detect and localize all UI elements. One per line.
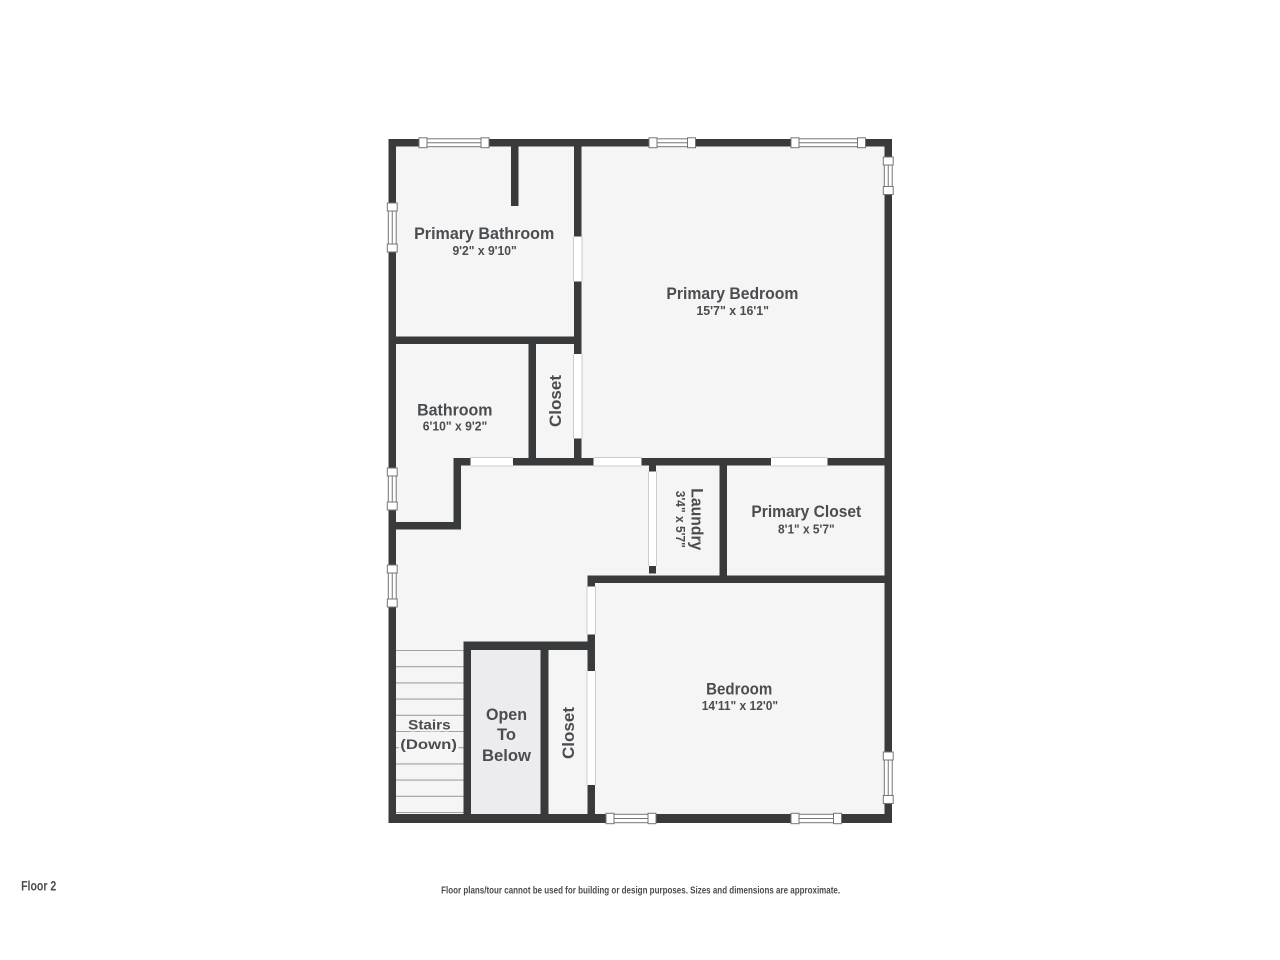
svg-text:(Down): (Down) bbox=[400, 737, 457, 752]
svg-text:14'11" x 12'0": 14'11" x 12'0" bbox=[702, 698, 778, 713]
svg-text:8'1" x 5'7": 8'1" x 5'7" bbox=[778, 521, 835, 536]
svg-text:Closet: Closet bbox=[560, 706, 578, 759]
svg-text:To: To bbox=[497, 726, 516, 744]
svg-text:Closet: Closet bbox=[547, 374, 565, 427]
svg-text:6'10" x 9'2": 6'10" x 9'2" bbox=[423, 418, 488, 433]
svg-text:Bedroom: Bedroom bbox=[706, 680, 772, 698]
svg-text:Floor plans/tour cannot be use: Floor plans/tour cannot be used for buil… bbox=[441, 884, 840, 896]
svg-text:Bathroom: Bathroom bbox=[417, 401, 492, 419]
svg-text:Below: Below bbox=[482, 747, 531, 765]
svg-text:Primary Closet: Primary Closet bbox=[751, 503, 861, 521]
svg-text:Primary Bedroom: Primary Bedroom bbox=[666, 285, 798, 303]
svg-text:Floor 2: Floor 2 bbox=[21, 878, 56, 893]
svg-text:Laundry: Laundry bbox=[687, 488, 705, 551]
svg-text:15'7" x 16'1": 15'7" x 16'1" bbox=[696, 303, 769, 318]
svg-text:9'2" x 9'10": 9'2" x 9'10" bbox=[452, 243, 516, 258]
svg-text:Primary Bathroom: Primary Bathroom bbox=[414, 225, 554, 243]
svg-text:Open: Open bbox=[486, 706, 527, 724]
svg-text:Stairs: Stairs bbox=[408, 717, 451, 732]
svg-text:3'4" x 5'7": 3'4" x 5'7" bbox=[673, 491, 688, 548]
